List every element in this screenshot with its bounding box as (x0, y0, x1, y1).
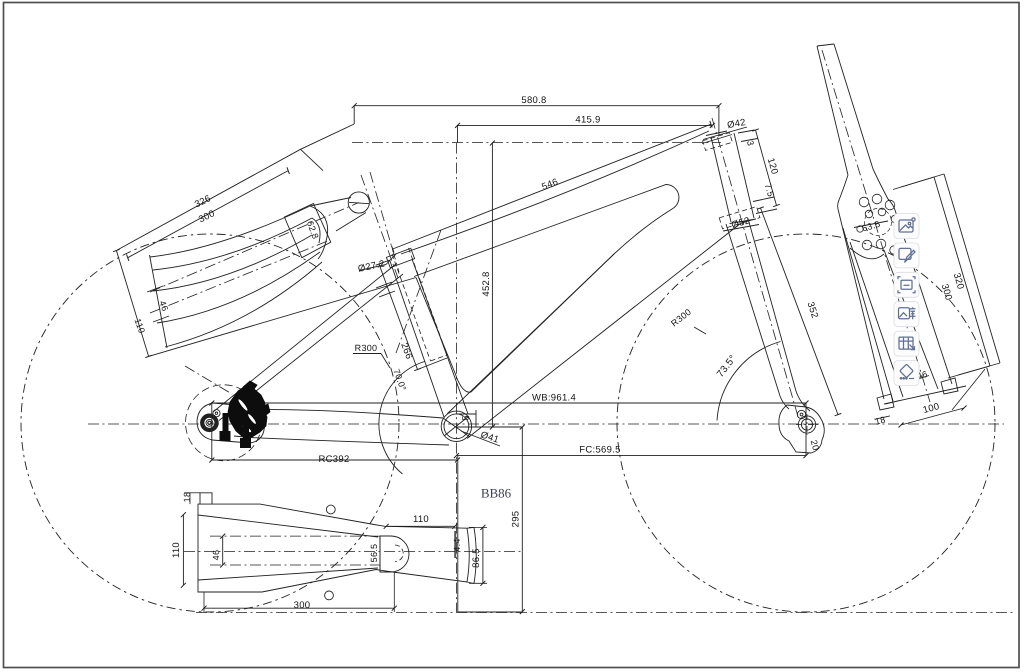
svg-text:R300: R300 (669, 307, 693, 329)
svg-text:300: 300 (939, 283, 954, 302)
svg-text:Ø52: Ø52 (730, 215, 751, 231)
svg-text:46: 46 (157, 299, 170, 312)
svg-text:320: 320 (951, 272, 966, 291)
svg-text:110: 110 (171, 542, 182, 558)
svg-text:R300: R300 (355, 343, 378, 353)
svg-text:266: 266 (398, 341, 414, 361)
svg-text:352: 352 (805, 301, 821, 320)
svg-text:63.5: 63.5 (861, 219, 882, 234)
svg-text:46: 46 (211, 550, 221, 561)
svg-text:WB:961.4: WB:961.4 (532, 393, 576, 404)
svg-text:73.5°: 73.5° (715, 353, 739, 379)
svg-text:4.4: 4.4 (452, 538, 462, 551)
svg-text:300: 300 (294, 600, 311, 611)
svg-text:Ø42: Ø42 (726, 117, 746, 131)
svg-text:5: 5 (461, 415, 471, 420)
svg-text:18: 18 (874, 414, 887, 426)
svg-text:326: 326 (193, 193, 213, 210)
svg-text:Ø41: Ø41 (479, 429, 500, 445)
svg-text:20: 20 (809, 439, 821, 452)
svg-text:295: 295 (511, 511, 522, 528)
svg-text:RC392: RC392 (318, 454, 349, 465)
svg-text:100: 100 (922, 401, 941, 416)
svg-text:546: 546 (540, 176, 560, 192)
svg-text:18: 18 (182, 492, 192, 503)
svg-text:BB86: BB86 (481, 486, 512, 501)
svg-text:110: 110 (133, 317, 148, 335)
svg-text:FC:569.5: FC:569.5 (579, 445, 620, 456)
svg-text:56.5: 56.5 (369, 544, 379, 563)
svg-text:86.5: 86.5 (471, 548, 482, 568)
svg-text:452.8: 452.8 (481, 271, 492, 296)
svg-text:7.5: 7.5 (763, 182, 776, 198)
svg-text:110: 110 (413, 514, 429, 525)
svg-text:415.9: 415.9 (575, 115, 600, 126)
svg-text:3: 3 (745, 139, 756, 147)
svg-text:580.8: 580.8 (521, 95, 546, 106)
